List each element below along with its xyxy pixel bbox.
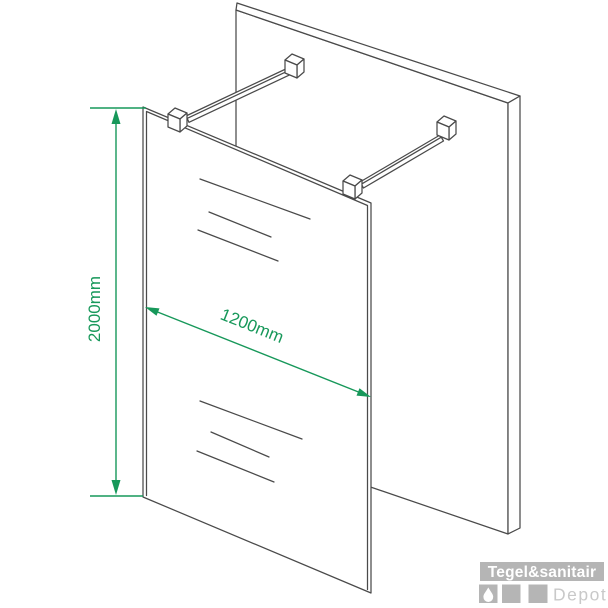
logo-square: [502, 585, 521, 604]
wall-mount-bracket: [285, 54, 304, 78]
line-drawing: [143, 3, 520, 593]
arrowhead-down-icon: [112, 480, 121, 495]
wall-side-face: [508, 96, 520, 534]
brand-logo: Tegel&sanitair Depot: [479, 562, 607, 605]
glass-clamp-bracket: [343, 175, 362, 199]
logo-depot-text: Depot: [553, 585, 607, 605]
height-dimension: 2000mm: [85, 108, 146, 496]
wall-mount-bracket: [437, 116, 456, 140]
product-diagram: 2000mm 1200mm Tegel&sanitair Depot: [0, 0, 608, 608]
glass-clamp-bracket: [168, 108, 187, 132]
logo-square: [529, 585, 548, 604]
arrowhead-up-icon: [112, 109, 121, 124]
height-dimension-label: 2000mm: [85, 276, 104, 342]
logo-brand-text: Tegel&sanitair: [488, 564, 596, 581]
